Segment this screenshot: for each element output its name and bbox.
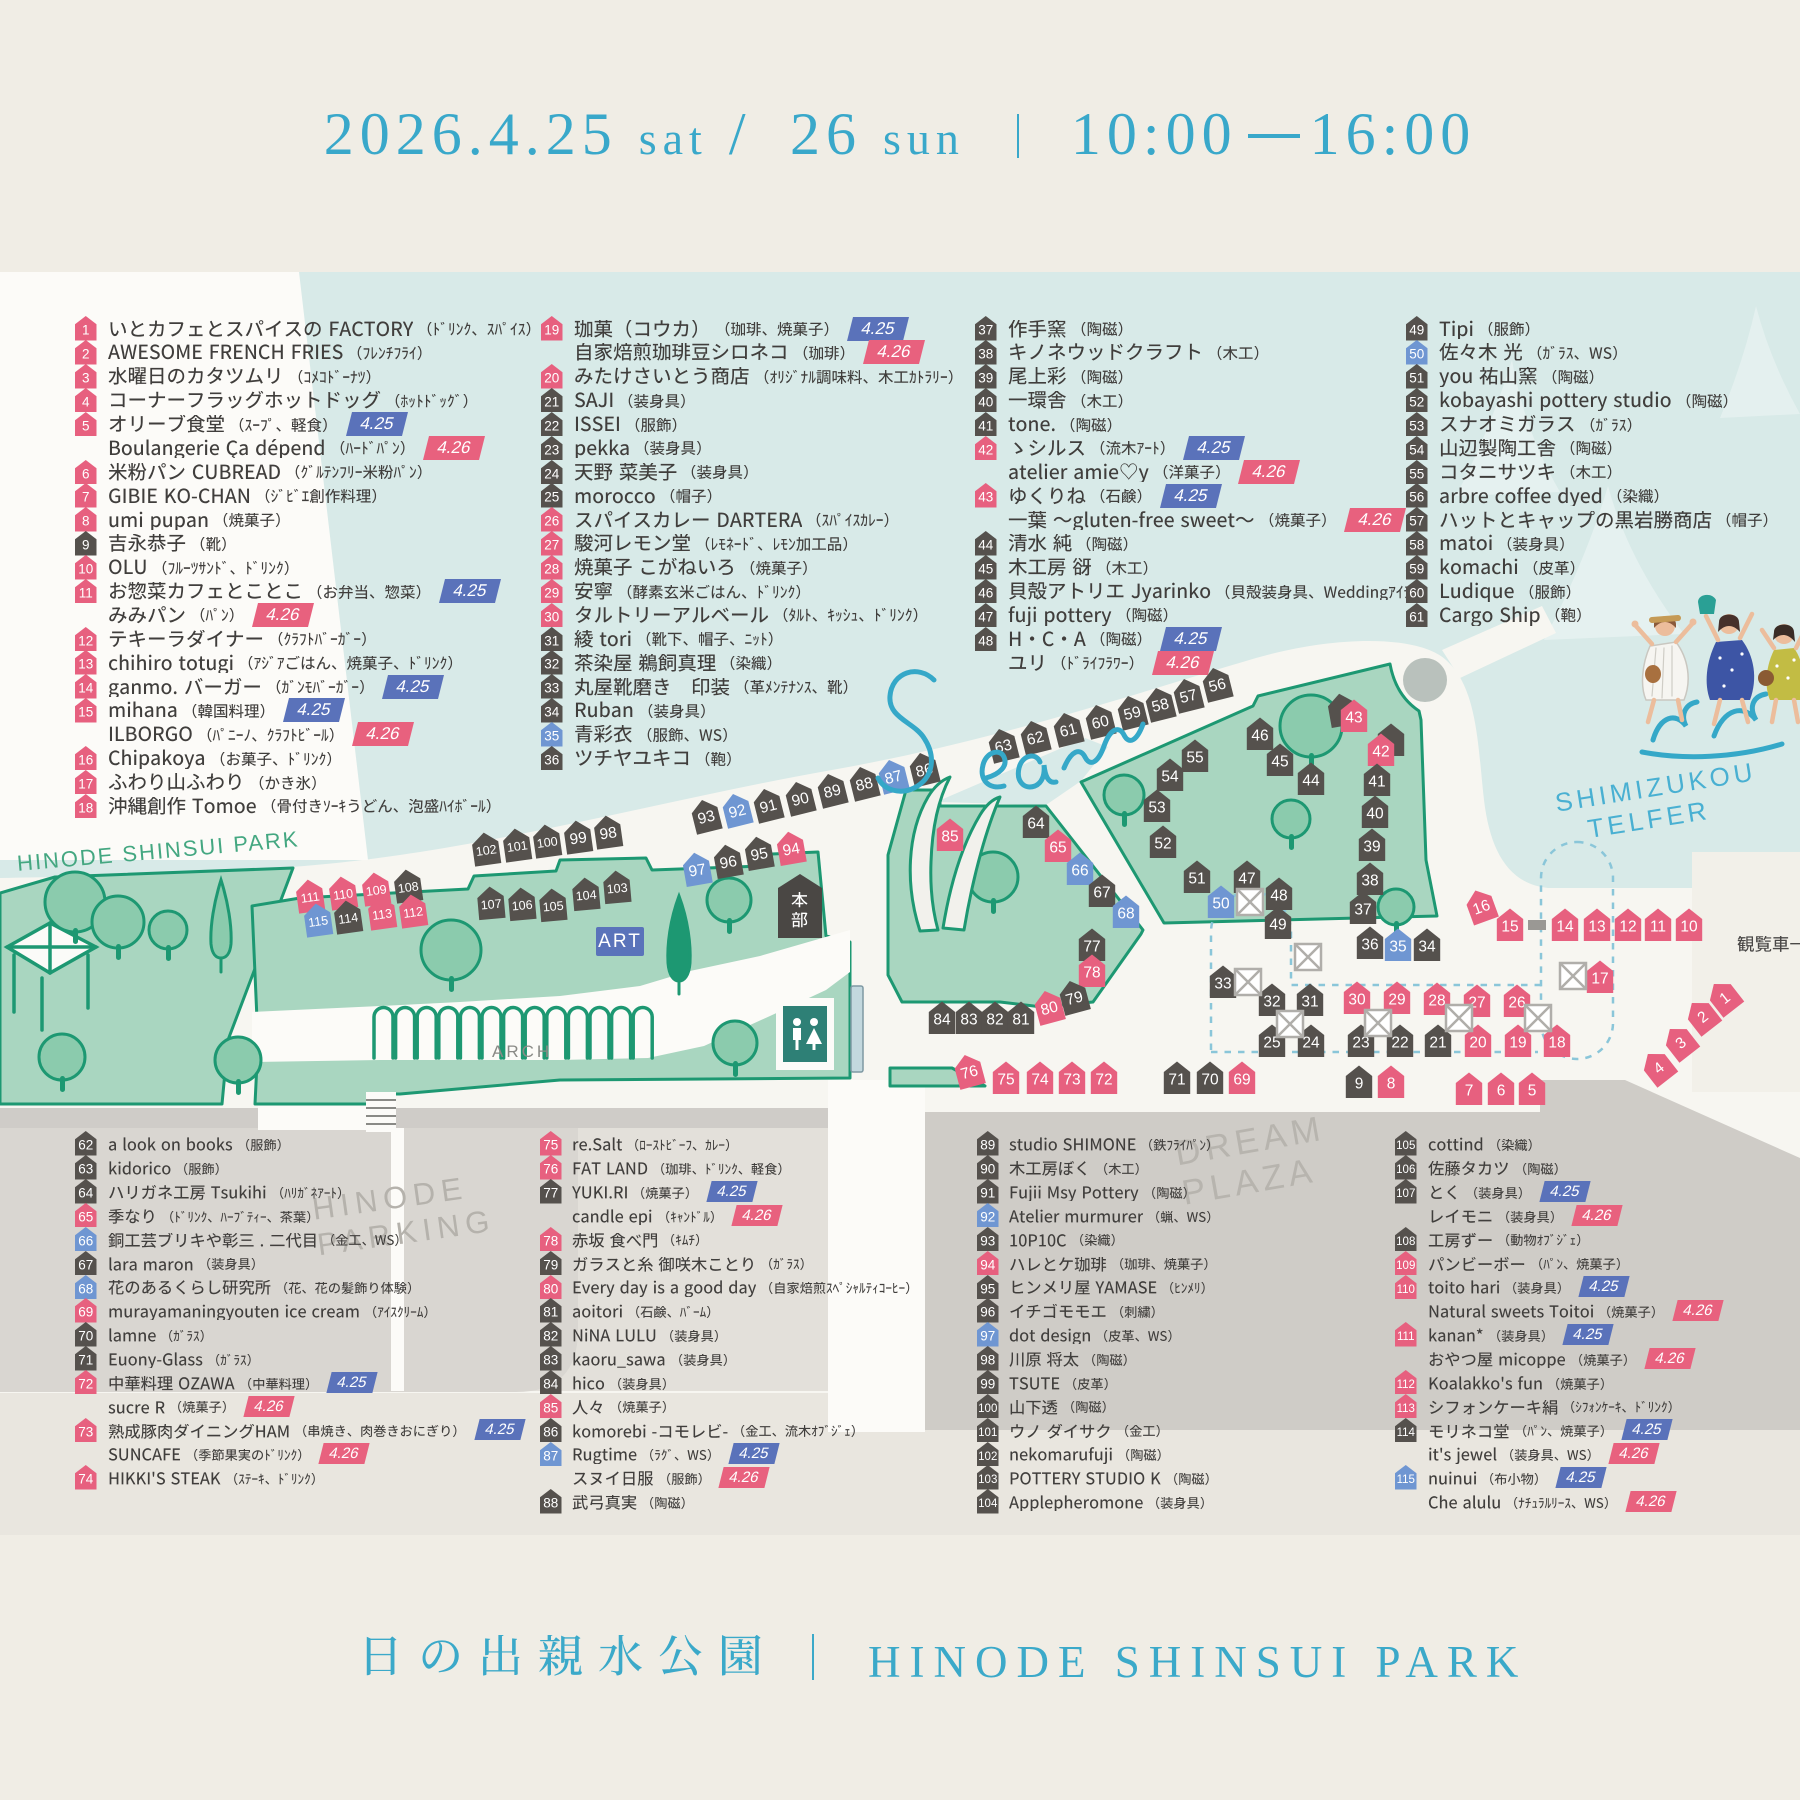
svg-text:8: 8 — [82, 513, 90, 528]
svg-text:65: 65 — [78, 1209, 93, 1224]
svg-text:37: 37 — [978, 322, 993, 337]
svg-text:106: 106 — [1396, 1164, 1415, 1176]
svg-text:63: 63 — [78, 1161, 93, 1176]
svg-text:31: 31 — [544, 633, 559, 648]
svg-text:34: 34 — [544, 704, 560, 719]
svg-text:44: 44 — [978, 537, 994, 552]
svg-text:99: 99 — [980, 1376, 995, 1391]
svg-text:39: 39 — [978, 370, 993, 385]
svg-text:110: 110 — [1397, 1283, 1415, 1295]
svg-text:102: 102 — [978, 1450, 997, 1462]
svg-text:64: 64 — [78, 1185, 94, 1200]
svg-text:76: 76 — [543, 1161, 558, 1176]
svg-text:93: 93 — [980, 1233, 995, 1248]
svg-text:17: 17 — [78, 776, 93, 791]
svg-text:59: 59 — [1409, 561, 1424, 576]
svg-text:12: 12 — [78, 633, 93, 648]
svg-text:94: 94 — [980, 1257, 996, 1272]
svg-text:4: 4 — [82, 394, 90, 409]
svg-text:35: 35 — [544, 728, 559, 743]
svg-text:60: 60 — [1409, 585, 1424, 600]
svg-text:49: 49 — [1409, 322, 1424, 337]
svg-text:84: 84 — [543, 1376, 559, 1391]
svg-text:88: 88 — [543, 1496, 558, 1511]
svg-text:22: 22 — [544, 418, 559, 433]
svg-text:52: 52 — [1409, 394, 1424, 409]
svg-text:50: 50 — [1409, 346, 1424, 361]
svg-text:75: 75 — [543, 1137, 558, 1152]
svg-text:92: 92 — [980, 1209, 995, 1224]
svg-text:85: 85 — [543, 1400, 558, 1415]
svg-text:25: 25 — [544, 490, 559, 505]
svg-text:20: 20 — [544, 370, 559, 385]
svg-text:82: 82 — [543, 1328, 558, 1343]
svg-text:113: 113 — [1397, 1403, 1415, 1415]
svg-text:19: 19 — [544, 322, 559, 337]
svg-text:14: 14 — [78, 681, 94, 696]
svg-text:100: 100 — [978, 1403, 997, 1415]
svg-text:23: 23 — [544, 442, 559, 457]
svg-text:91: 91 — [980, 1185, 995, 1200]
svg-text:56: 56 — [1409, 490, 1424, 505]
svg-text:28: 28 — [544, 561, 559, 576]
svg-text:26: 26 — [544, 513, 559, 528]
svg-text:42: 42 — [978, 442, 993, 457]
svg-text:101: 101 — [978, 1426, 997, 1438]
svg-text:74: 74 — [78, 1472, 94, 1487]
svg-text:69: 69 — [78, 1305, 93, 1320]
svg-text:61: 61 — [1409, 609, 1424, 624]
svg-text:72: 72 — [78, 1376, 93, 1391]
svg-text:115: 115 — [1397, 1474, 1415, 1486]
svg-text:78: 78 — [543, 1233, 558, 1248]
svg-text:107: 107 — [1396, 1188, 1415, 1200]
svg-text:95: 95 — [980, 1281, 995, 1296]
svg-text:7: 7 — [82, 490, 90, 505]
svg-text:48: 48 — [978, 633, 993, 648]
svg-text:77: 77 — [543, 1185, 558, 1200]
svg-text:89: 89 — [980, 1137, 995, 1152]
svg-text:58: 58 — [1409, 537, 1424, 552]
svg-text:105: 105 — [1396, 1140, 1415, 1152]
svg-text:1: 1 — [82, 322, 90, 337]
svg-text:46: 46 — [978, 585, 993, 600]
svg-text:67: 67 — [78, 1257, 93, 1272]
svg-text:54: 54 — [1409, 442, 1425, 457]
svg-text:2: 2 — [82, 346, 90, 361]
svg-text:33: 33 — [544, 681, 559, 696]
svg-text:80: 80 — [543, 1281, 558, 1296]
svg-text:47: 47 — [978, 609, 993, 624]
svg-text:96: 96 — [980, 1305, 995, 1320]
svg-text:40: 40 — [978, 394, 993, 409]
svg-text:10: 10 — [78, 561, 93, 576]
svg-text:24: 24 — [544, 466, 560, 481]
svg-text:87: 87 — [543, 1448, 558, 1463]
svg-text:73: 73 — [78, 1424, 93, 1439]
svg-text:16: 16 — [78, 752, 93, 767]
svg-text:57: 57 — [1409, 513, 1424, 528]
svg-text:112: 112 — [1397, 1379, 1415, 1391]
svg-text:66: 66 — [78, 1233, 93, 1248]
svg-text:51: 51 — [1409, 370, 1424, 385]
svg-text:45: 45 — [978, 561, 993, 576]
svg-text:6: 6 — [82, 466, 90, 481]
svg-text:18: 18 — [78, 800, 93, 815]
svg-text:83: 83 — [543, 1352, 558, 1367]
svg-text:41: 41 — [978, 418, 993, 433]
svg-text:68: 68 — [78, 1281, 93, 1296]
svg-text:114: 114 — [1397, 1426, 1416, 1438]
svg-text:9: 9 — [82, 537, 90, 552]
svg-text:36: 36 — [544, 752, 559, 767]
svg-text:13: 13 — [78, 657, 93, 672]
svg-text:30: 30 — [544, 609, 559, 624]
svg-text:15: 15 — [78, 704, 93, 719]
svg-text:11: 11 — [79, 585, 93, 600]
svg-text:3: 3 — [82, 370, 90, 385]
svg-text:79: 79 — [543, 1257, 558, 1272]
svg-text:97: 97 — [980, 1328, 995, 1343]
svg-text:55: 55 — [1409, 466, 1424, 481]
svg-text:43: 43 — [978, 490, 993, 505]
svg-text:5: 5 — [82, 418, 90, 433]
svg-text:21: 21 — [544, 394, 559, 409]
svg-text:90: 90 — [980, 1161, 995, 1176]
svg-text:27: 27 — [544, 537, 559, 552]
svg-text:38: 38 — [978, 346, 993, 361]
svg-text:53: 53 — [1409, 418, 1424, 433]
svg-text:98: 98 — [980, 1352, 995, 1367]
svg-text:29: 29 — [544, 585, 559, 600]
svg-text:86: 86 — [543, 1424, 558, 1439]
svg-text:104: 104 — [978, 1498, 998, 1510]
svg-text:108: 108 — [1396, 1235, 1415, 1247]
svg-text:81: 81 — [543, 1305, 558, 1320]
svg-text:71: 71 — [78, 1352, 93, 1367]
svg-text:103: 103 — [978, 1474, 997, 1486]
svg-text:111: 111 — [1397, 1331, 1414, 1343]
svg-text:109: 109 — [1396, 1259, 1415, 1271]
svg-text:62: 62 — [78, 1137, 93, 1152]
svg-text:32: 32 — [544, 657, 559, 672]
svg-text:70: 70 — [78, 1328, 93, 1343]
